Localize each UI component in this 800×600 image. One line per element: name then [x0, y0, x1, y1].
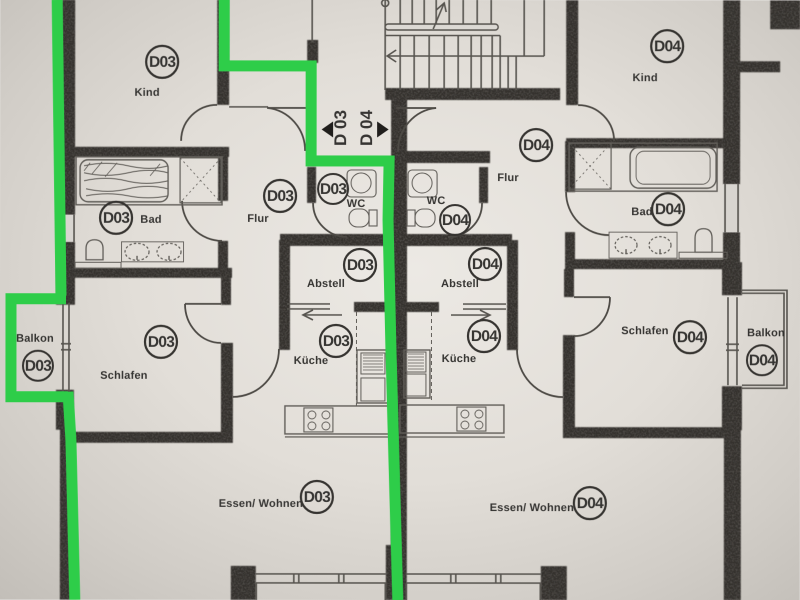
svg-text:Kind: Kind [633, 72, 658, 84]
svg-text:Balkon: Balkon [747, 327, 785, 339]
svg-text:D03: D03 [103, 210, 130, 227]
svg-text:D03: D03 [25, 358, 52, 375]
svg-text:D03: D03 [149, 54, 176, 71]
svg-text:D03: D03 [323, 333, 350, 350]
svg-text:WC: WC [427, 195, 446, 207]
svg-text:Schlafen: Schlafen [100, 370, 148, 382]
svg-text:D03: D03 [267, 188, 294, 205]
svg-text:D03: D03 [304, 489, 331, 506]
svg-text:Balkon: Balkon [16, 333, 54, 345]
svg-text:D04: D04 [749, 352, 776, 369]
svg-text:WC: WC [347, 198, 366, 210]
svg-text:D 04: D 04 [357, 109, 376, 145]
svg-text:D04: D04 [472, 256, 499, 273]
svg-text:Flur: Flur [497, 172, 519, 184]
svg-text:D04: D04 [577, 495, 604, 512]
svg-text:D04: D04 [442, 212, 469, 229]
svg-text:D04: D04 [654, 38, 681, 55]
svg-text:Schlafen: Schlafen [621, 325, 669, 337]
svg-text:D03: D03 [148, 334, 175, 351]
svg-text:Essen/ Wohnen: Essen/ Wohnen [490, 502, 574, 514]
svg-text:Bad: Bad [631, 206, 652, 218]
svg-text:D04: D04 [677, 329, 704, 346]
svg-text:D04: D04 [523, 137, 550, 154]
svg-text:D04: D04 [471, 328, 498, 345]
svg-text:Kind: Kind [135, 87, 160, 99]
svg-text:Flur: Flur [247, 213, 269, 225]
svg-text:Abstell: Abstell [307, 278, 345, 290]
svg-text:D04: D04 [655, 201, 682, 218]
svg-text:Abstell: Abstell [441, 278, 479, 290]
svg-text:Küche: Küche [442, 353, 477, 365]
svg-text:D 03: D 03 [331, 110, 350, 146]
svg-text:D03: D03 [320, 181, 347, 198]
svg-text:Essen/ Wohnen: Essen/ Wohnen [219, 498, 303, 510]
svg-text:Küche: Küche [294, 355, 329, 367]
svg-text:Bad: Bad [140, 214, 161, 226]
svg-text:D03: D03 [347, 257, 374, 274]
